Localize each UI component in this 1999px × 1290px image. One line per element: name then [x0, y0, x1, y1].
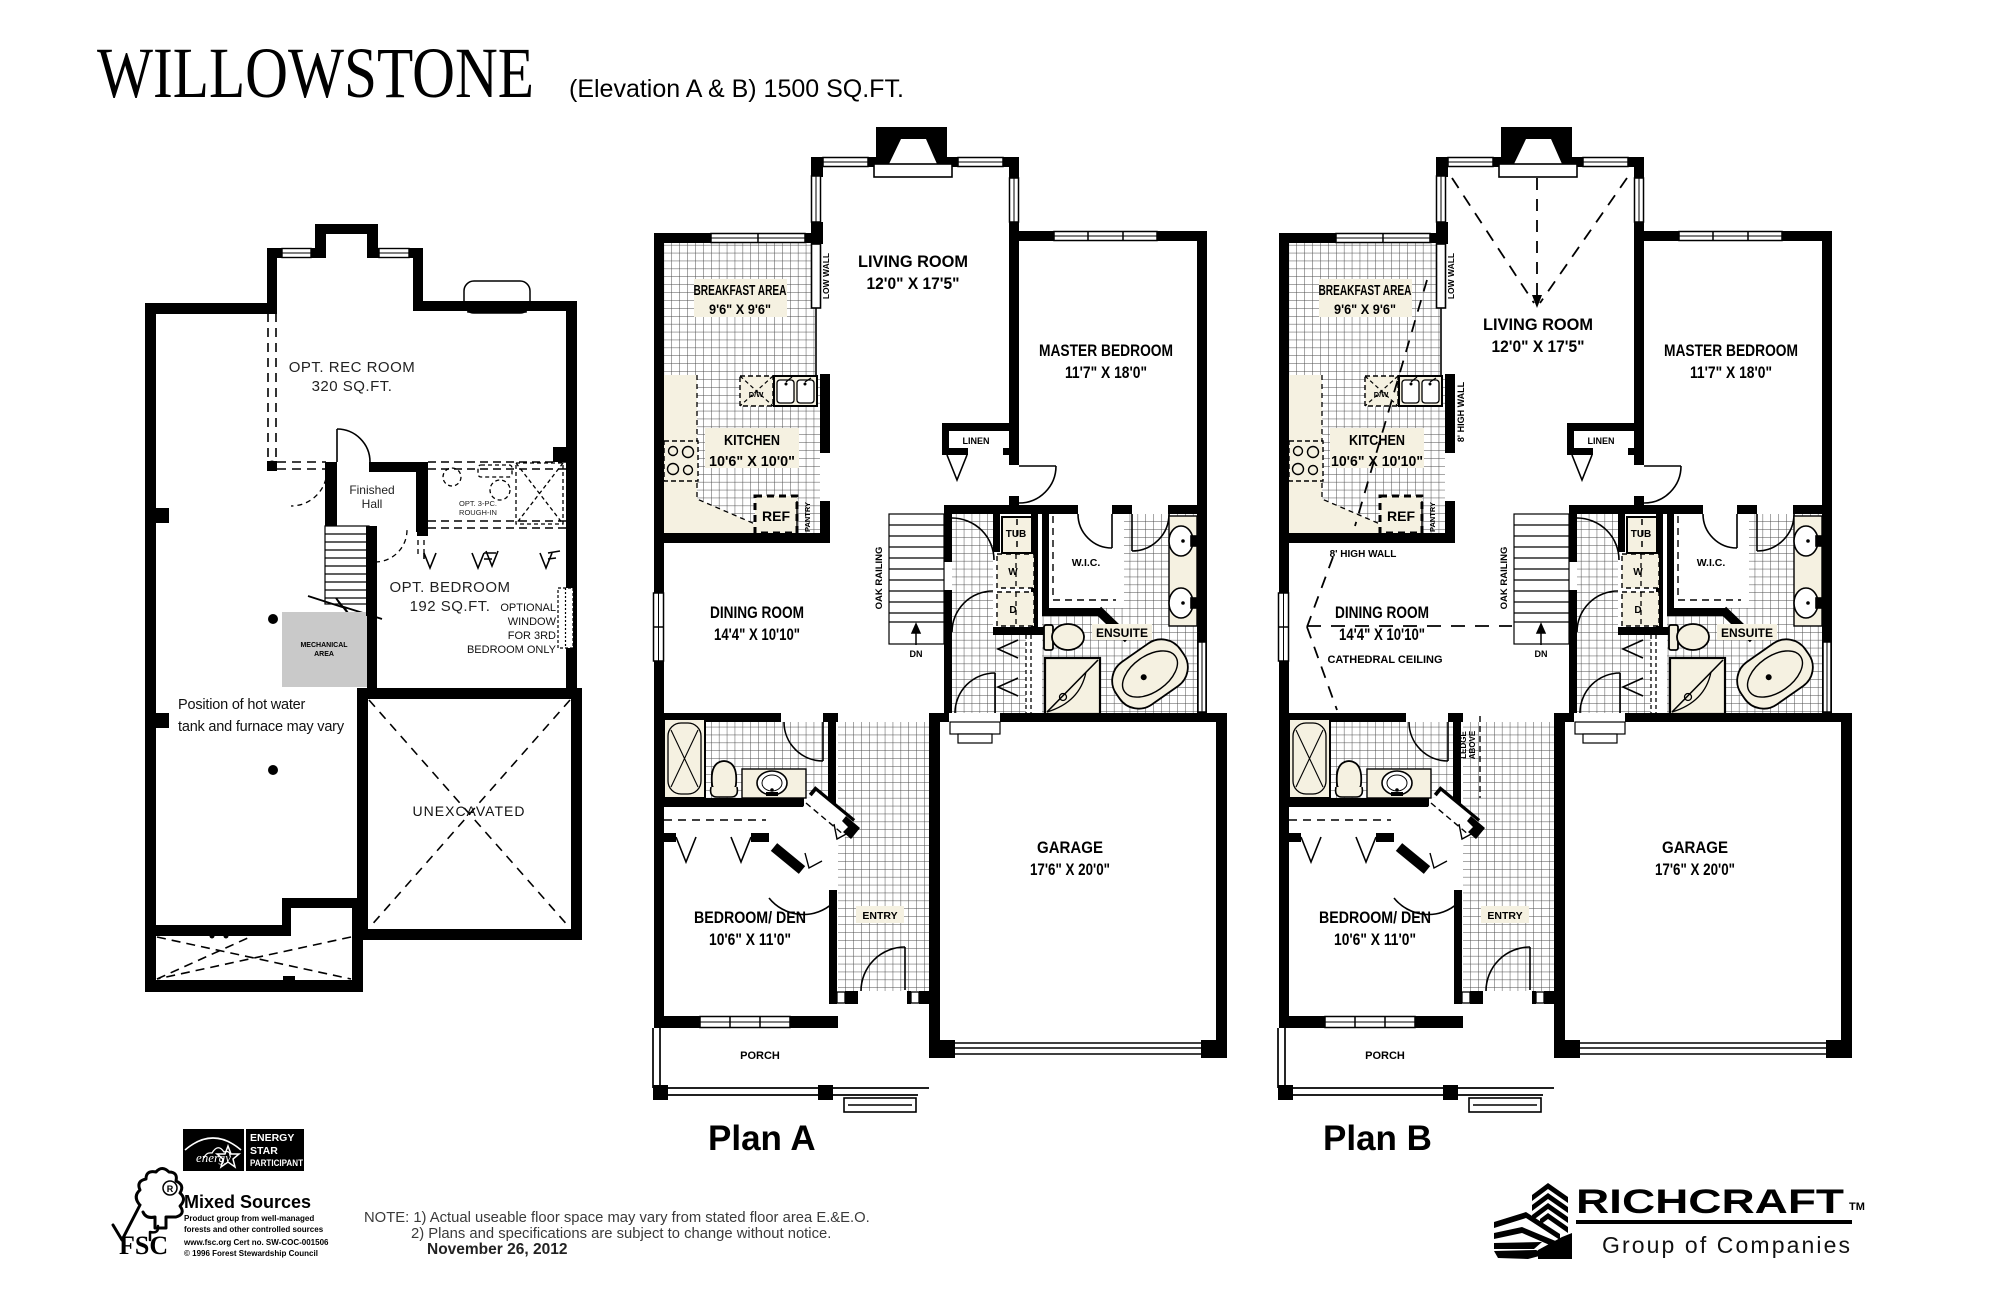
svg-text:UNEXCAVATED: UNEXCAVATED [413, 803, 526, 819]
svg-text:R: R [167, 1184, 174, 1194]
svg-text:CATHEDRAL CEILING: CATHEDRAL CEILING [1327, 654, 1442, 666]
svg-text:AREA: AREA [314, 651, 334, 658]
svg-text:8' HIGH WALL: 8' HIGH WALL [1456, 381, 1466, 442]
svg-text:TM: TM [1849, 1201, 1865, 1213]
svg-text:OPTIONAL: OPTIONAL [500, 602, 556, 614]
svg-text:BREAKFAST AREA: BREAKFAST AREA [694, 282, 787, 299]
svg-text:W.I.C.: W.I.C. [1072, 557, 1101, 569]
svg-text:REF: REF [762, 508, 790, 524]
svg-text:10'6" X 11'0": 10'6" X 11'0" [709, 930, 791, 949]
svg-text:DN: DN [910, 649, 923, 659]
svg-text:OAK RAILING: OAK RAILING [874, 547, 885, 610]
svg-text:LOW WALL: LOW WALL [821, 253, 831, 299]
svg-text:ENERGY: ENERGY [250, 1132, 294, 1144]
svg-text:tank and furnace may vary: tank and furnace may vary [178, 719, 345, 735]
svg-text:NOTE: 1) Actual useable floor: NOTE: 1) Actual useable floor space may … [364, 1210, 870, 1226]
svg-text:LINEN: LINEN [963, 436, 990, 446]
svg-text:November 26, 2012: November 26, 2012 [427, 1241, 567, 1258]
svg-text:MASTER BEDROOM: MASTER BEDROOM [1039, 341, 1173, 360]
svg-text:12'0" X 17'5": 12'0" X 17'5" [867, 274, 960, 293]
svg-text:forests and other controlled s: forests and other controlled sources [184, 1225, 324, 1234]
svg-text:Group of Companies: Group of Companies [1602, 1232, 1850, 1258]
svg-text:© 1996 Forest Stewardship Coun: © 1996 Forest Stewardship Council [184, 1249, 318, 1258]
svg-text:ABOVE: ABOVE [1468, 730, 1477, 759]
svg-text:RICHCRAFT: RICHCRAFT [1576, 1183, 1844, 1221]
svg-text:10'6" X 10'10": 10'6" X 10'10" [1331, 453, 1423, 470]
svg-text:D: D [1009, 605, 1016, 616]
svg-text:14'4" X 10'10": 14'4" X 10'10" [714, 625, 800, 644]
svg-text:WILLOWSTONE: WILLOWSTONE [97, 33, 534, 113]
svg-text:17'6" X 20'0": 17'6" X 20'0" [1030, 860, 1110, 879]
svg-text:BEDROOM ONLY: BEDROOM ONLY [467, 644, 557, 656]
svg-text:(Elevation A & B) 1500 SQ.FT.: (Elevation A & B) 1500 SQ.FT. [569, 75, 904, 103]
svg-text:PARTICIPANT: PARTICIPANT [250, 1158, 303, 1168]
svg-text:FSC: FSC [119, 1231, 168, 1260]
svg-text:320 SQ.FT.: 320 SQ.FT. [312, 378, 393, 395]
svg-text:11'7" X 18'0": 11'7" X 18'0" [1065, 363, 1147, 382]
svg-text:10'6" X 10'0": 10'6" X 10'0" [709, 453, 795, 470]
svg-text:MECHANICAL: MECHANICAL [300, 642, 348, 649]
svg-text:Product group from well-manage: Product group from well-managed [184, 1214, 314, 1223]
svg-text:Plan A: Plan A [708, 1119, 816, 1158]
svg-text:ENTRY: ENTRY [862, 910, 897, 922]
svg-text:WINDOW: WINDOW [508, 616, 557, 628]
svg-text:W: W [1008, 567, 1018, 578]
svg-text:OPT. REC ROOM: OPT. REC ROOM [289, 359, 416, 376]
svg-text:BEDROOM/ DEN: BEDROOM/ DEN [694, 908, 806, 927]
svg-text:Position of hot water: Position of hot water [178, 697, 306, 713]
svg-text:www.fsc.org Cert no. SW-COC-: www.fsc.org Cert no. SW-COC-001506 [183, 1238, 329, 1247]
svg-text:KITCHEN: KITCHEN [724, 432, 780, 449]
svg-text:D/W: D/W [749, 390, 765, 399]
svg-text:FOR 3RD: FOR 3RD [508, 630, 556, 642]
svg-text:Finished: Finished [349, 483, 394, 497]
svg-text:OPT. 3-PC.: OPT. 3-PC. [459, 499, 497, 508]
svg-text:8' HIGH WALL: 8' HIGH WALL [1330, 549, 1397, 560]
svg-text:PORCH: PORCH [740, 1050, 780, 1062]
svg-text:Hall: Hall [362, 497, 383, 511]
svg-text:LEDGE: LEDGE [1459, 731, 1468, 759]
svg-text:STAR: STAR [250, 1145, 278, 1157]
svg-text:ENSUITE: ENSUITE [1096, 626, 1148, 640]
svg-text:TUB: TUB [1006, 529, 1027, 540]
svg-text:LIVING ROOM: LIVING ROOM [1483, 315, 1593, 334]
svg-text:Mixed Sources: Mixed Sources [184, 1192, 311, 1212]
svg-text:LIVING ROOM: LIVING ROOM [858, 252, 968, 271]
svg-text:192 SQ.FT.: 192 SQ.FT. [410, 598, 491, 615]
svg-text:2) Plans and specifications ar: 2) Plans and specifications are subject … [411, 1226, 831, 1242]
svg-text:OPT. BEDROOM: OPT. BEDROOM [389, 579, 510, 596]
svg-text:12'0" X 17'5": 12'0" X 17'5" [1492, 337, 1585, 356]
svg-text:ROUGH-IN: ROUGH-IN [459, 508, 497, 517]
svg-text:Plan B: Plan B [1323, 1119, 1432, 1158]
svg-text:GARAGE: GARAGE [1037, 838, 1103, 857]
svg-text:PANTRY: PANTRY [803, 502, 812, 532]
svg-text:9'6" X 9'6": 9'6" X 9'6" [709, 301, 771, 317]
svg-text:DINING ROOM: DINING ROOM [710, 603, 804, 622]
